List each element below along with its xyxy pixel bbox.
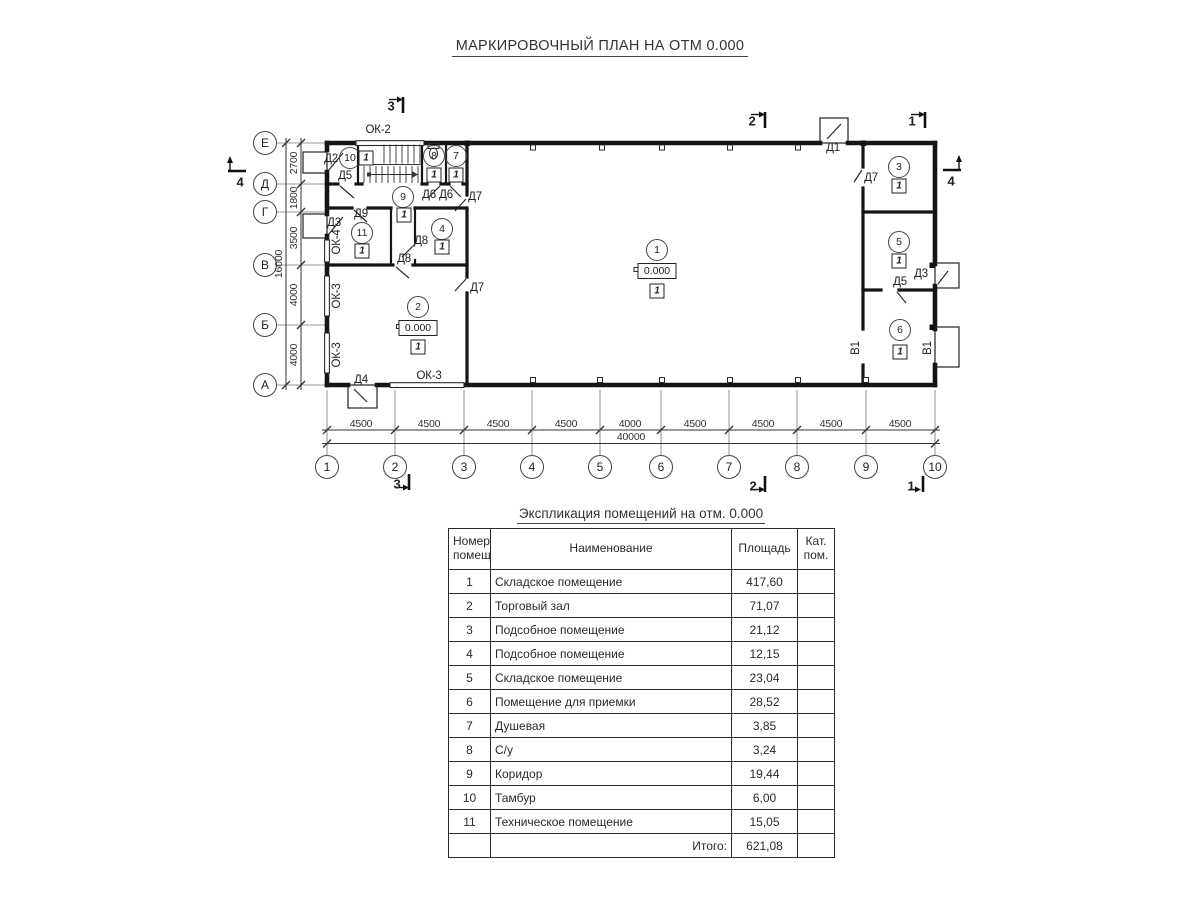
cell-cat [798,810,835,834]
table-title: Экспликация помещений на отм. 0.000 [448,506,834,521]
table-row: 8С/у3,24 [449,738,835,762]
cell-name: Душевая [491,714,732,738]
cell-name: Складское помещение [491,666,732,690]
cell-area: 417,60 [732,570,798,594]
cell-name: С/у [491,738,732,762]
table-header-row: Номер помещ. Наименование Площадь Кат. п… [449,529,835,570]
cell-num: 9 [449,762,491,786]
cell-area: 6,00 [732,786,798,810]
cell-area: 19,44 [732,762,798,786]
table-row: 7Душевая3,85 [449,714,835,738]
cell-num: 10 [449,786,491,810]
cell-num: 2 [449,594,491,618]
total-empty-cell [449,834,491,858]
table-row: 10Тамбур6,00 [449,786,835,810]
cell-num: 8 [449,738,491,762]
cell-area: 12,15 [732,642,798,666]
cell-num: 7 [449,714,491,738]
cell-num: 3 [449,618,491,642]
cell-area: 23,04 [732,666,798,690]
total-value: 621,08 [732,834,798,858]
cell-area: 21,12 [732,618,798,642]
cell-cat [798,690,835,714]
cell-cat [798,570,835,594]
table-row: 9Коридор19,44 [449,762,835,786]
cell-name: Помещение для приемки [491,690,732,714]
explication-table: Номер помещ. Наименование Площадь Кат. п… [448,528,835,858]
cell-name: Коридор [491,762,732,786]
cell-num: 6 [449,690,491,714]
cell-area: 3,24 [732,738,798,762]
table-row: 6Помещение для приемки28,52 [449,690,835,714]
cell-name: Техническое помещение [491,810,732,834]
cell-area: 28,52 [732,690,798,714]
table-row: 11Техническое помещение15,05 [449,810,835,834]
cell-num: 1 [449,570,491,594]
explication-table-block: Экспликация помещений на отм. 0.000 Номе… [448,506,834,858]
cell-cat [798,642,835,666]
porches [303,118,959,408]
cell-cat [798,714,835,738]
col-header-area: Площадь [732,529,798,570]
cell-cat [798,666,835,690]
cell-cat [798,786,835,810]
table-total-row: Итого: 621,08 [449,834,835,858]
cell-name: Складское помещение [491,570,732,594]
table-row: 5Складское помещение23,04 [449,666,835,690]
cell-cat [798,762,835,786]
cell-area: 15,05 [732,810,798,834]
cell-name: Торговый зал [491,594,732,618]
cell-num: 4 [449,642,491,666]
section-glyphs [227,97,962,493]
total-label: Итого: [491,834,732,858]
col-header-category: Кат. пом. [798,529,835,570]
col-header-number: Номер помещ. [449,529,491,570]
table-row: 2Торговый зал71,07 [449,594,835,618]
cell-num: 5 [449,666,491,690]
stairs [358,145,422,184]
dimension-lines [282,138,940,448]
drawing-sheet: МАРКИРОВОЧНЫЙ ПЛАН НА ОТМ 0.000 [0,0,1200,900]
cell-num: 11 [449,810,491,834]
table-row: 3Подсобное помещение21,12 [449,618,835,642]
cell-area: 3,85 [732,714,798,738]
cell-cat [798,594,835,618]
cell-cat [798,618,835,642]
table-row: 4Подсобное помещение12,15 [449,642,835,666]
cell-name: Подсобное помещение [491,642,732,666]
col-header-name: Наименование [491,529,732,570]
cell-name: Подсобное помещение [491,618,732,642]
cell-cat [798,738,835,762]
cell-area: 71,07 [732,594,798,618]
total-cat-cell [798,834,835,858]
toilet-fixture [428,144,439,160]
cell-name: Тамбур [491,786,732,810]
table-row: 1Складское помещение417,60 [449,570,835,594]
